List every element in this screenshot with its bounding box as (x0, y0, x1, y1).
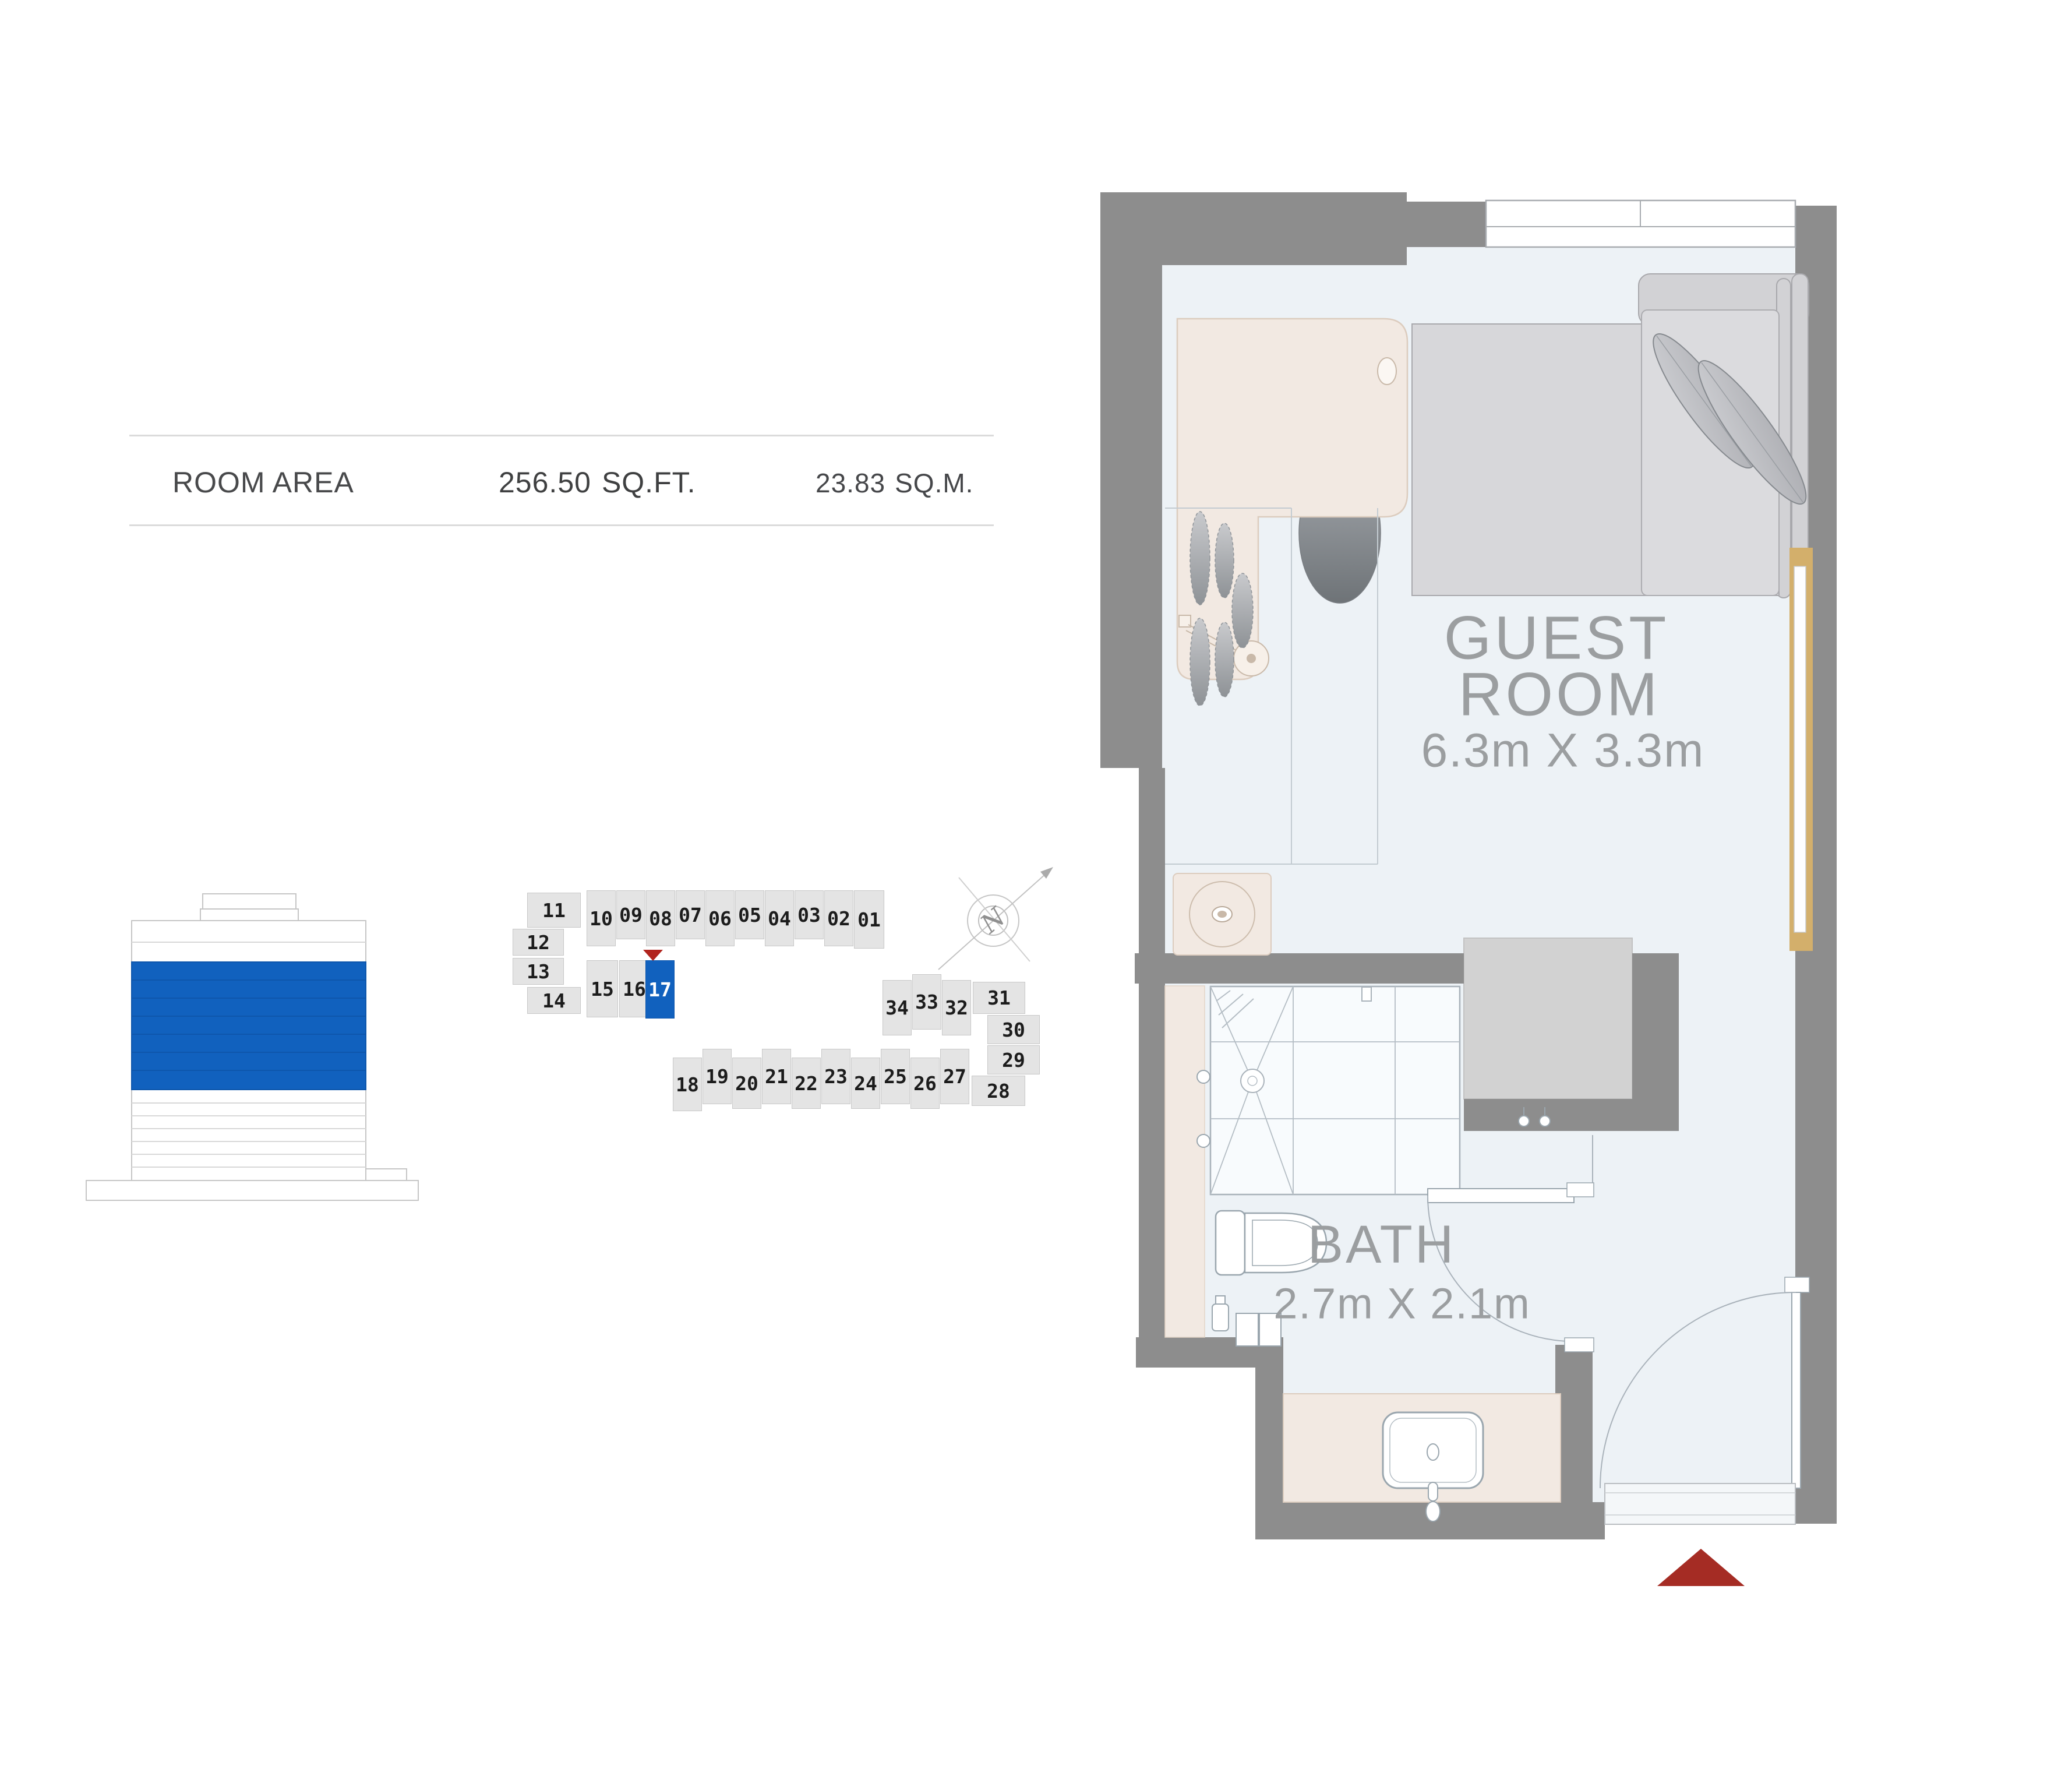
entrance-marker-icon (1657, 1549, 1745, 1586)
shower-head-icon (1362, 987, 1371, 1001)
room-area-label: ROOM AREA (172, 466, 354, 499)
bath-wall-finish (1165, 986, 1205, 1337)
keyplan-unit-15[interactable]: 15 (587, 960, 618, 1017)
sqft-value: 256.50 (499, 466, 591, 499)
keyplan-unit-13[interactable]: 13 (513, 958, 564, 985)
bedside-stool (1173, 873, 1271, 955)
sqm-unit: SQ.M. (895, 468, 973, 498)
shower-drain-icon (1241, 1069, 1264, 1093)
keyplan-unit-05[interactable]: 05 (735, 890, 764, 939)
keyplan-unit-30[interactable]: 30 (987, 1015, 1040, 1044)
keyplan-unit-26[interactable]: 26 (910, 1058, 940, 1109)
keyplan-unit-21[interactable]: 21 (762, 1049, 791, 1104)
keyplan-unit-06[interactable]: 06 (705, 890, 735, 946)
service-shaft (1464, 938, 1632, 1099)
divider-top (129, 435, 994, 436)
sqft-unit: SQ.FT. (602, 466, 696, 499)
keyplan-unit-29[interactable]: 29 (987, 1045, 1040, 1074)
guest-room-label-line2: ROOM (1459, 661, 1661, 729)
keyplan-unit-22[interactable]: 22 (792, 1058, 821, 1109)
keyplan-unit-18[interactable]: 18 (673, 1058, 702, 1111)
building-elevation-icon (82, 877, 437, 1209)
compass-icon: N (929, 859, 1063, 988)
room-area-sqft: 256.50SQ.FT. (499, 466, 696, 499)
keyplan-unit-25[interactable]: 25 (881, 1049, 910, 1104)
entrance-threshold (1605, 1483, 1795, 1524)
shower-knob-icon (1197, 1070, 1210, 1083)
keyplan-unit-10[interactable]: 10 (587, 890, 616, 946)
keyplan-unit-28[interactable]: 28 (972, 1076, 1025, 1106)
keyplan-unit-32[interactable]: 32 (942, 980, 971, 1035)
keyplan-unit-20[interactable]: 20 (732, 1058, 761, 1109)
guest-room-dimensions: 6.3m X 3.3m (1421, 724, 1705, 777)
keyplan-unit-02[interactable]: 02 (824, 890, 853, 946)
side-window (1789, 548, 1813, 951)
keyplan-unit-17[interactable]: 17 (645, 960, 675, 1019)
keyplan-unit-11[interactable]: 11 (527, 893, 581, 928)
key-plan-pointer-icon (643, 950, 663, 961)
shower-knob-icon (1197, 1134, 1210, 1147)
vanity (1283, 1394, 1561, 1521)
floor-plan-drawing: GUEST ROOM 6.3m X 3.3m BATH 2.7m X 2.1m (1078, 175, 1905, 1608)
keyplan-unit-27[interactable]: 27 (940, 1049, 969, 1104)
keyplan-unit-07[interactable]: 07 (676, 890, 705, 939)
keyplan-unit-04[interactable]: 04 (765, 890, 794, 946)
keyplan-unit-23[interactable]: 23 (821, 1049, 850, 1104)
keyplan-unit-08[interactable]: 08 (646, 890, 675, 946)
keyplan-unit-14[interactable]: 14 (527, 987, 581, 1014)
divider-bottom (129, 524, 994, 526)
sqm-value: 23.83 (816, 468, 885, 498)
keyplan-unit-34[interactable]: 34 (883, 980, 912, 1035)
keyplan-unit-09[interactable]: 09 (616, 890, 645, 939)
shower (1197, 986, 1460, 1194)
sink (1383, 1412, 1483, 1488)
keyplan-unit-03[interactable]: 03 (795, 890, 824, 939)
keyplan-unit-19[interactable]: 19 (703, 1049, 732, 1104)
keyplan-unit-01[interactable]: 01 (854, 890, 884, 949)
floor-plan-page: ROOM AREA 256.50SQ.FT. 23.83SQ.M. (0, 0, 2072, 1776)
keyplan-unit-12[interactable]: 12 (513, 929, 564, 956)
bath-dimensions: 2.7m X 2.1m (1273, 1280, 1531, 1328)
desk-lamp-icon (1378, 358, 1396, 385)
window-top (1486, 200, 1795, 247)
bath-label: BATH (1308, 1215, 1456, 1274)
keyplan-unit-24[interactable]: 24 (851, 1058, 880, 1109)
room-area-sqm: 23.83SQ.M. (816, 467, 973, 499)
